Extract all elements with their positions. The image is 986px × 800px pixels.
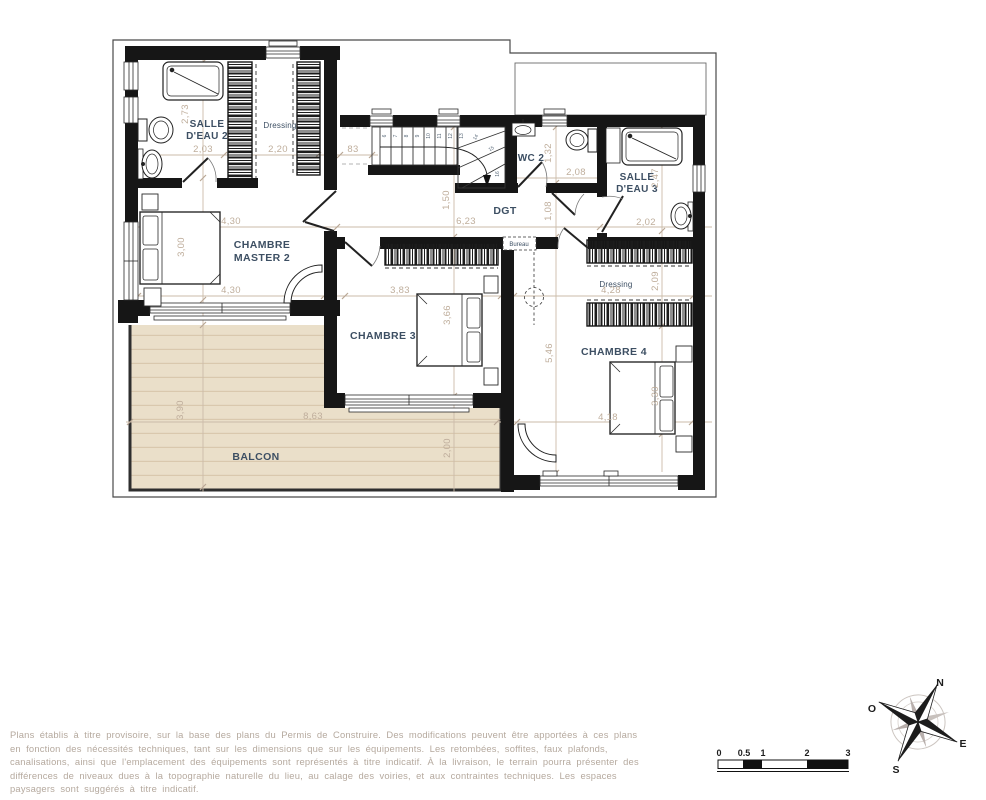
floor-plan-page: SALLE D'EAU 2 Dressing WC 2 SALLE D'EAU … <box>0 0 986 800</box>
step-7: 7 <box>393 134 399 137</box>
label-bureau: Bureau <box>509 242 528 248</box>
label-dressing-1: Dressing <box>263 121 296 130</box>
wardrobe-ch4-upper <box>587 240 692 263</box>
window-master-left <box>124 222 138 300</box>
compass-rose-icon: N E S O <box>859 665 976 782</box>
wardrobe-ch4-lower <box>587 303 692 326</box>
window-stair-1 <box>370 109 393 126</box>
dim-master-width-bottom: 4,30 <box>221 285 241 296</box>
window-sde3-right <box>693 165 705 192</box>
door-wc2 <box>518 162 547 187</box>
door-dgt-junction <box>552 193 584 215</box>
disclaimer-line-3: canalisations, ainsi que l'emplacement d… <box>10 755 710 769</box>
label-wc-2: WC 2 <box>518 153 545 164</box>
compass-east-label: E <box>959 738 966 750</box>
dim-ch4-height: 5,46 <box>544 343 555 363</box>
window-stair-2 <box>437 109 460 126</box>
scale-0: 0 <box>716 748 721 758</box>
dim-sde2-width: 2,03 <box>193 144 213 155</box>
label-balcon: BALCON <box>232 451 279 463</box>
disclaimer-line-2: en fonction des nécessités techniques, t… <box>10 742 710 756</box>
label-dgt: DGT <box>493 205 517 217</box>
dim-master-width-top: 4,30 <box>221 216 241 227</box>
dim-ch3-height: 3,66 <box>442 305 453 325</box>
dim-balcon-height-left: 3,90 <box>175 400 186 420</box>
dim-stair-width: 1,50 <box>441 190 452 210</box>
dim-dressing2-height: 2,09 <box>650 271 661 291</box>
dim-dgt-width: 6,23 <box>456 216 476 227</box>
wardrobe-ch3 <box>385 243 498 265</box>
compass-south-label: S <box>892 764 899 776</box>
dim-stair-gap: 83 <box>347 144 358 155</box>
window-left-1 <box>124 62 138 90</box>
disclaimer-line-4: différences de niveaux dues à la topogra… <box>10 769 710 783</box>
door-ch3 <box>345 242 380 266</box>
step-12: 12 <box>448 133 454 139</box>
dim-master-height: 3,00 <box>176 237 187 257</box>
shower-sde3 <box>622 128 682 165</box>
toilet-wc2 <box>566 129 597 152</box>
label-salle-eau-2-l1: SALLE <box>190 119 225 130</box>
disclaimer-line-5: paysagers sont suggérés à titre indicati… <box>10 782 710 796</box>
step-9: 9 <box>415 134 421 137</box>
sink-sde2 <box>138 149 162 179</box>
wardrobe-dressing1-right <box>297 62 320 175</box>
dim-ch4-width-bottom: 4,18 <box>598 412 618 423</box>
staircase <box>342 127 505 188</box>
duct-sde3 <box>606 128 620 163</box>
floor-plan-drawing: SALLE D'EAU 2 Dressing WC 2 SALLE D'EAU … <box>0 0 986 800</box>
compass-west-label: O <box>868 703 876 715</box>
door-master-angled <box>303 191 336 231</box>
step-10: 10 <box>426 133 432 139</box>
step-8: 8 <box>404 134 410 137</box>
door-sde2 <box>183 158 216 182</box>
scale-bar: 0 0.5 1 2 3 <box>716 748 850 772</box>
label-chambre-master-2-l2: MASTER 2 <box>234 252 290 264</box>
door-ch4 <box>558 228 588 248</box>
disclaimer-text: Plans établis à titre provisoire, sur la… <box>10 728 710 796</box>
scale-3: 3 <box>845 748 850 758</box>
dim-dressing1-width: 2,20 <box>268 144 288 155</box>
dim-balcon-width: 8,63 <box>303 411 323 422</box>
window-ch4-south <box>540 471 678 486</box>
window-ch3-balcony <box>345 395 473 412</box>
toilet-sde2 <box>138 117 173 143</box>
window-wc2 <box>542 109 567 126</box>
wardrobe-dressing1-left <box>228 62 252 180</box>
dim-ch4-bed-width: 3,30 <box>650 386 661 406</box>
dim-sde2-height: 2,73 <box>180 104 191 124</box>
window-master-balcony <box>150 303 290 320</box>
dim-dgt-height: 1,08 <box>543 201 554 221</box>
step-13: 13 <box>459 133 465 139</box>
scale-05: 0.5 <box>738 748 751 758</box>
dim-wc2-width: 2,08 <box>566 167 586 178</box>
window-left-2 <box>124 97 138 123</box>
label-chambre-master-2-l1: CHAMBRE <box>234 239 290 251</box>
scale-1: 1 <box>760 748 765 758</box>
dim-dressing2-width: 4,28 <box>601 285 621 296</box>
dim-sde3-width: 2,02 <box>636 217 656 228</box>
scale-2: 2 <box>804 748 809 758</box>
dim-balcon-depth: 2,00 <box>442 438 453 458</box>
window-top-left <box>266 41 300 58</box>
corner-shower-ch4 <box>518 424 556 462</box>
dim-ch3-width: 3,83 <box>390 285 410 296</box>
label-chambre-4: CHAMBRE 4 <box>581 346 647 358</box>
compass-north-label: N <box>936 677 944 689</box>
lower-roof-outline <box>515 63 706 115</box>
shower-sde2 <box>163 62 223 100</box>
step-16: 16 <box>495 171 501 177</box>
disclaimer-line-1: Plans établis à titre provisoire, sur la… <box>10 728 710 742</box>
dim-sde3-height: 2,47 <box>650 168 661 188</box>
dim-wc2-height: 1,32 <box>543 143 554 163</box>
corner-shower-master <box>284 265 322 303</box>
label-salle-eau-2-l2: D'EAU 2 <box>186 131 228 142</box>
label-chambre-3: CHAMBRE 3 <box>350 330 416 342</box>
bed-ch3 <box>417 276 498 385</box>
step-11: 11 <box>437 133 443 138</box>
step-6: 6 <box>382 134 388 137</box>
